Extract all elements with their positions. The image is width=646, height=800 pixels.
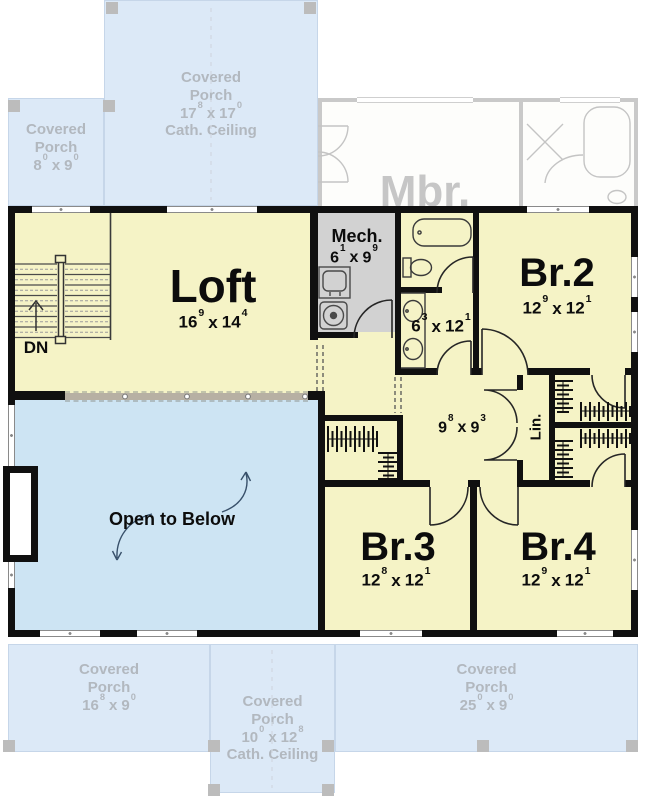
covered-porch-bottom-left: Covered Porch 168x90 bbox=[8, 644, 210, 752]
wall-bath-br2 bbox=[473, 213, 479, 368]
exterior-wall-left bbox=[8, 206, 15, 405]
wall-hall-east bbox=[517, 375, 523, 390]
wall-mech-bath bbox=[395, 213, 401, 375]
wall-hall-west bbox=[397, 415, 403, 487]
ghost-wall bbox=[318, 98, 322, 206]
ghost-wall bbox=[519, 98, 523, 206]
window bbox=[631, 530, 638, 590]
bedroom3-label: Br.3 bbox=[360, 527, 436, 567]
window bbox=[167, 206, 257, 213]
porch-label: Covered Porch bbox=[16, 121, 96, 156]
bathroom-dimensions: 63x121 bbox=[411, 317, 471, 335]
wall-hall-south bbox=[625, 480, 638, 487]
wall-hall-north bbox=[471, 368, 482, 375]
railing-wall-segment bbox=[8, 391, 65, 400]
ghost-master-bedroom-label: Mbr. bbox=[380, 170, 470, 206]
floor-plan-canvas: Covered Porch 178x170 Cath. Ceiling Cove… bbox=[0, 0, 646, 800]
wall-bath-interior bbox=[395, 287, 442, 293]
ghost-window bbox=[560, 97, 620, 103]
porch-post bbox=[322, 740, 334, 752]
wall-mech-bottom bbox=[310, 332, 358, 338]
window bbox=[137, 630, 197, 637]
wall-hall-south bbox=[468, 480, 480, 487]
ghost-window bbox=[357, 97, 473, 103]
wall-hall-north bbox=[625, 368, 638, 375]
wall-hall-south bbox=[518, 480, 590, 487]
wall-open-below-east bbox=[318, 400, 325, 637]
wall-hall-north bbox=[395, 368, 438, 375]
wall-hall-north bbox=[528, 368, 590, 375]
covered-porch-top-left: Covered Porch 80x90 bbox=[8, 98, 104, 206]
window bbox=[527, 206, 589, 213]
ghost-master-bedroom bbox=[318, 98, 638, 206]
porch-post bbox=[304, 2, 316, 14]
wall-hall-south bbox=[318, 480, 430, 487]
loft-dimensions: 169x144 bbox=[178, 313, 247, 331]
porch-dimensions: 168x90 bbox=[82, 696, 136, 714]
porch-note: Cath. Ceiling bbox=[227, 746, 319, 764]
porch-dimensions: 100x128 bbox=[241, 728, 303, 746]
porch-post bbox=[322, 784, 334, 796]
bedroom3-dimensions: 128x121 bbox=[361, 571, 430, 589]
loft-label: Loft bbox=[170, 263, 257, 309]
window bbox=[631, 312, 638, 352]
wall-closet-divider bbox=[549, 422, 638, 428]
bedroom4-dimensions: 129x121 bbox=[521, 571, 590, 589]
covered-porch-bottom-right: Covered Porch 250x90 bbox=[335, 644, 638, 752]
porch-post bbox=[103, 100, 115, 112]
wall-mech-left bbox=[310, 213, 318, 340]
porch-dimensions: 178x170 bbox=[180, 104, 242, 122]
mech-dimensions: 61x99 bbox=[330, 249, 378, 266]
porch-dimensions: 80x90 bbox=[33, 156, 78, 174]
porch-post bbox=[106, 2, 118, 14]
wall-br3-br4 bbox=[470, 487, 477, 630]
bedroom2-label: Br.2 bbox=[519, 253, 595, 293]
wall-linen-right bbox=[549, 375, 555, 487]
porch-post bbox=[477, 740, 489, 752]
open-to-below-label: Open to Below bbox=[109, 510, 235, 528]
bedroom2-dimensions: 129x121 bbox=[522, 299, 591, 317]
ghost-wall bbox=[634, 98, 638, 206]
stairs-dn-label: DN bbox=[24, 339, 49, 356]
porch-post bbox=[3, 740, 15, 752]
bedroom4-label: Br.4 bbox=[520, 527, 596, 567]
window bbox=[32, 206, 90, 213]
porch-post bbox=[208, 740, 220, 752]
exterior-wall-left bbox=[8, 588, 15, 637]
hall-dimensions: 98x93 bbox=[438, 419, 486, 436]
covered-porch-top-center: Covered Porch 178x170 Cath. Ceiling bbox=[104, 0, 318, 206]
chimney bbox=[3, 466, 38, 562]
porch-post bbox=[626, 740, 638, 752]
loft-railing bbox=[65, 393, 308, 400]
covered-porch-bottom-center: Covered Porch 100x128 Cath. Ceiling bbox=[210, 644, 335, 793]
window bbox=[557, 630, 613, 637]
porch-dimensions: 250x90 bbox=[460, 696, 514, 714]
porch-note: Cath. Ceiling bbox=[165, 122, 257, 140]
window bbox=[40, 630, 100, 637]
window bbox=[8, 562, 15, 588]
railing-post bbox=[308, 391, 325, 400]
wall-br3-closet-top bbox=[318, 415, 403, 421]
porch-label: Covered Porch bbox=[69, 661, 149, 696]
porch-label: Covered Porch bbox=[447, 661, 527, 696]
porch-post bbox=[208, 784, 220, 796]
porch-post bbox=[8, 100, 20, 112]
window bbox=[8, 405, 15, 466]
window bbox=[360, 630, 422, 637]
ghost-top-layer: Covered Porch 178x170 Cath. Ceiling Cove… bbox=[0, 0, 646, 206]
window bbox=[631, 257, 638, 297]
linen-closet-label: Lin. bbox=[528, 414, 545, 441]
